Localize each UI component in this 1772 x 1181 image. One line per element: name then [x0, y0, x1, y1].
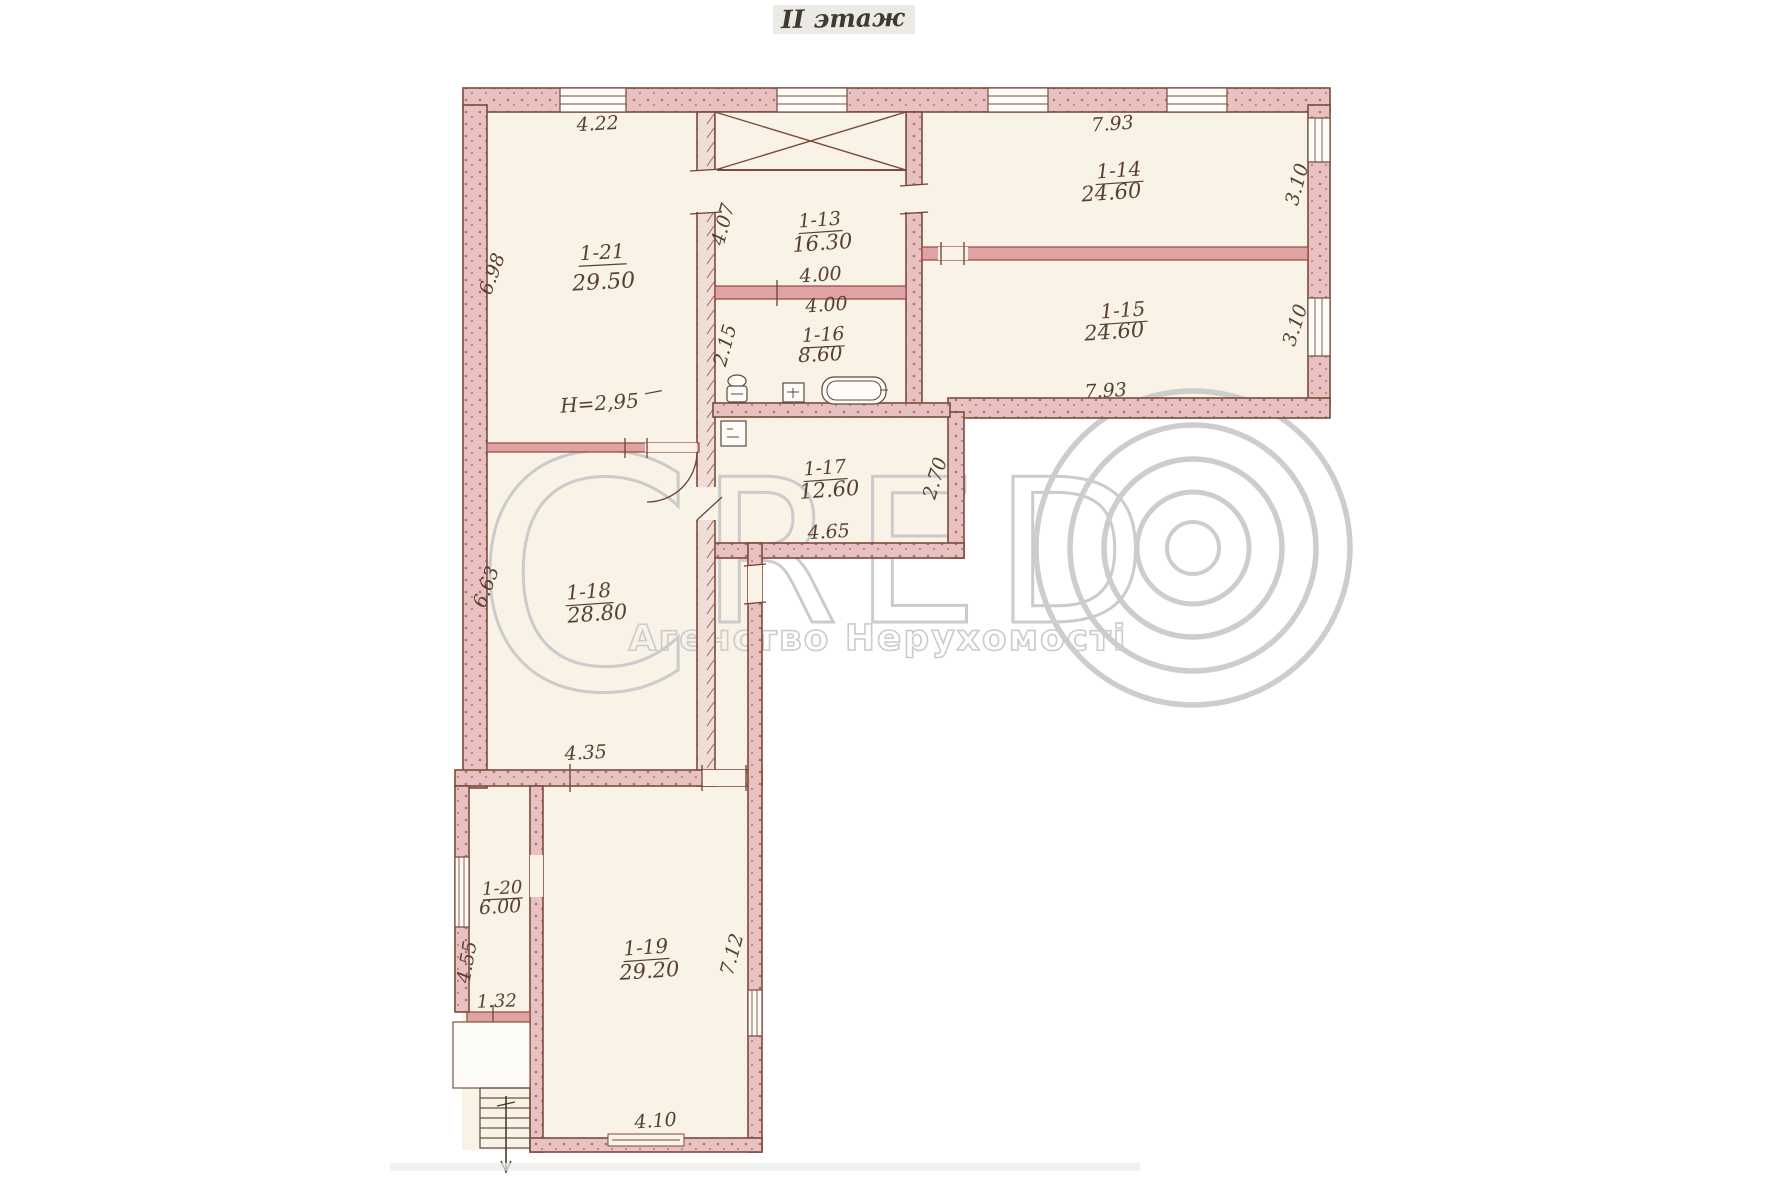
dim-width-1-20: 1.32: [476, 990, 517, 1012]
door-20-19: [530, 855, 543, 897]
door-17-corridor: [748, 565, 762, 603]
wall-right-wing-bottom: [948, 398, 1330, 418]
floor-plan-drawing: C RED Агенство Нерухомості: [0, 0, 1772, 1181]
vestibule: [453, 1022, 530, 1088]
room-area: 29.20: [618, 957, 681, 985]
wall-room17-bottom: [700, 543, 964, 558]
room-1-20-label: 1-20 6.00: [478, 877, 524, 919]
dim-width-1-18: 4.35: [563, 741, 607, 765]
room-area: 6.00: [478, 895, 521, 919]
door-21-18: [645, 443, 697, 452]
wall-left-upper: [463, 105, 487, 788]
window: [1167, 88, 1227, 112]
drawing-title-block: II этаж: [773, 3, 915, 34]
window: [560, 88, 626, 112]
dim-width-1-21: 4.22: [575, 112, 619, 136]
scan-artifact: [390, 1163, 1140, 1171]
dim-width-1-14: 7.93: [1091, 112, 1135, 137]
room-area: 28.80: [565, 600, 628, 628]
room-1-16-label: 1-16 8.60: [796, 323, 846, 367]
room-area: 24.60: [1082, 317, 1145, 345]
door-corridor-wing: [702, 770, 746, 786]
wall-bath-bottom: [713, 403, 950, 417]
room-area: 8.60: [797, 341, 843, 367]
dim-width-1-15: 7.93: [1084, 379, 1127, 403]
window: [748, 990, 762, 1036]
toilet-fixture: [727, 375, 747, 402]
bathtub-fixture: [822, 377, 888, 404]
dim-width-1-13: 4.00: [798, 263, 843, 288]
wall-14-15: [922, 247, 1308, 260]
scanned-floor-plan-page: C RED Агенство Нерухомості: [0, 0, 1772, 1181]
wall-20-19: [530, 786, 543, 1152]
room-number: 1-13: [798, 208, 842, 233]
window: [455, 857, 469, 927]
window: [1308, 298, 1330, 356]
wall-wing-right: [748, 543, 762, 1152]
dim-width-1-16: 4.00: [804, 293, 849, 318]
door-18-corridor: [695, 487, 717, 520]
room-area: 29.50: [571, 268, 636, 296]
electrical-box: [721, 421, 746, 446]
window: [988, 88, 1048, 112]
room-number: 1-21: [579, 239, 625, 265]
entrance-threshold: [608, 1134, 684, 1146]
shaft-x-braced: [715, 112, 906, 170]
sink-fixture: [783, 383, 804, 402]
wall-room17-right: [948, 412, 964, 558]
room-area: 16.30: [792, 229, 854, 257]
window: [777, 88, 847, 112]
dim-width-1-19: 4.10: [633, 1109, 678, 1134]
door-21-13: [695, 170, 717, 212]
wall-13-14: [906, 112, 922, 412]
door-13-14: [904, 185, 924, 212]
window: [1308, 118, 1330, 162]
dim-width-1-17: 4.65: [806, 520, 850, 544]
room-number: 1-19: [622, 933, 669, 960]
page-title: II этаж: [780, 3, 906, 34]
room-area: 12.60: [799, 476, 861, 504]
room-area: 24.60: [1079, 178, 1142, 206]
